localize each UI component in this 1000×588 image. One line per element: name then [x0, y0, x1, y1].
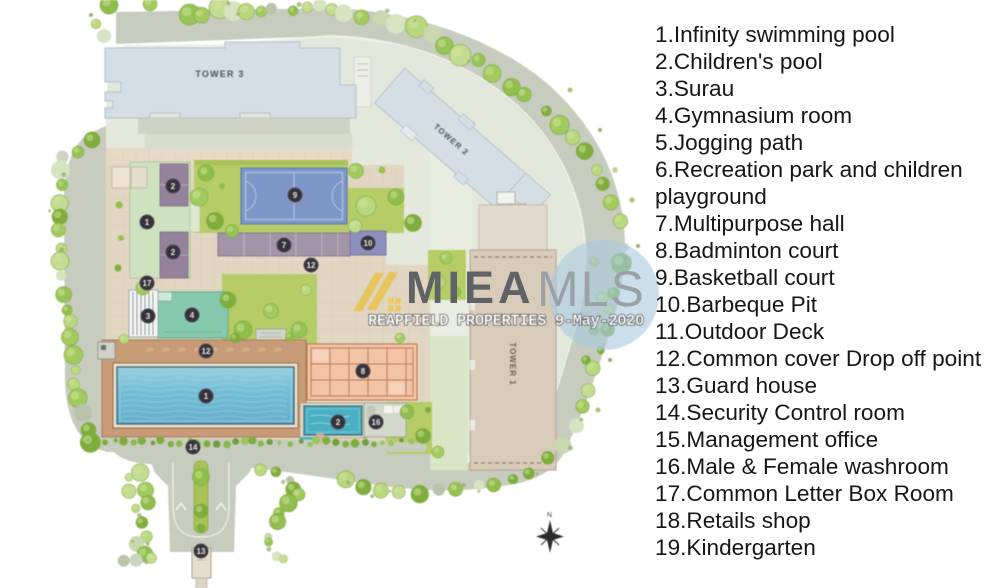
svg-text:2: 2 — [336, 418, 341, 427]
svg-text:1: 1 — [145, 218, 150, 227]
svg-text:12: 12 — [202, 347, 211, 356]
svg-text:12: 12 — [307, 261, 316, 270]
svg-text:17: 17 — [143, 279, 152, 288]
svg-text:8: 8 — [361, 367, 366, 376]
svg-text:4: 4 — [190, 311, 195, 320]
svg-text:9: 9 — [293, 191, 298, 200]
svg-text:14: 14 — [189, 443, 198, 452]
svg-text:1: 1 — [204, 392, 209, 401]
svg-text:16: 16 — [372, 418, 381, 427]
svg-text:2: 2 — [171, 182, 176, 191]
svg-text:2: 2 — [171, 248, 176, 257]
svg-text:N: N — [547, 512, 552, 519]
svg-text:13: 13 — [197, 547, 206, 556]
svg-text:3: 3 — [146, 312, 151, 321]
svg-text:TOWER 1: TOWER 1 — [508, 342, 517, 385]
svg-text:10: 10 — [364, 239, 373, 248]
svg-text:7: 7 — [282, 241, 287, 250]
svg-text:TOWER 3: TOWER 3 — [195, 69, 244, 79]
